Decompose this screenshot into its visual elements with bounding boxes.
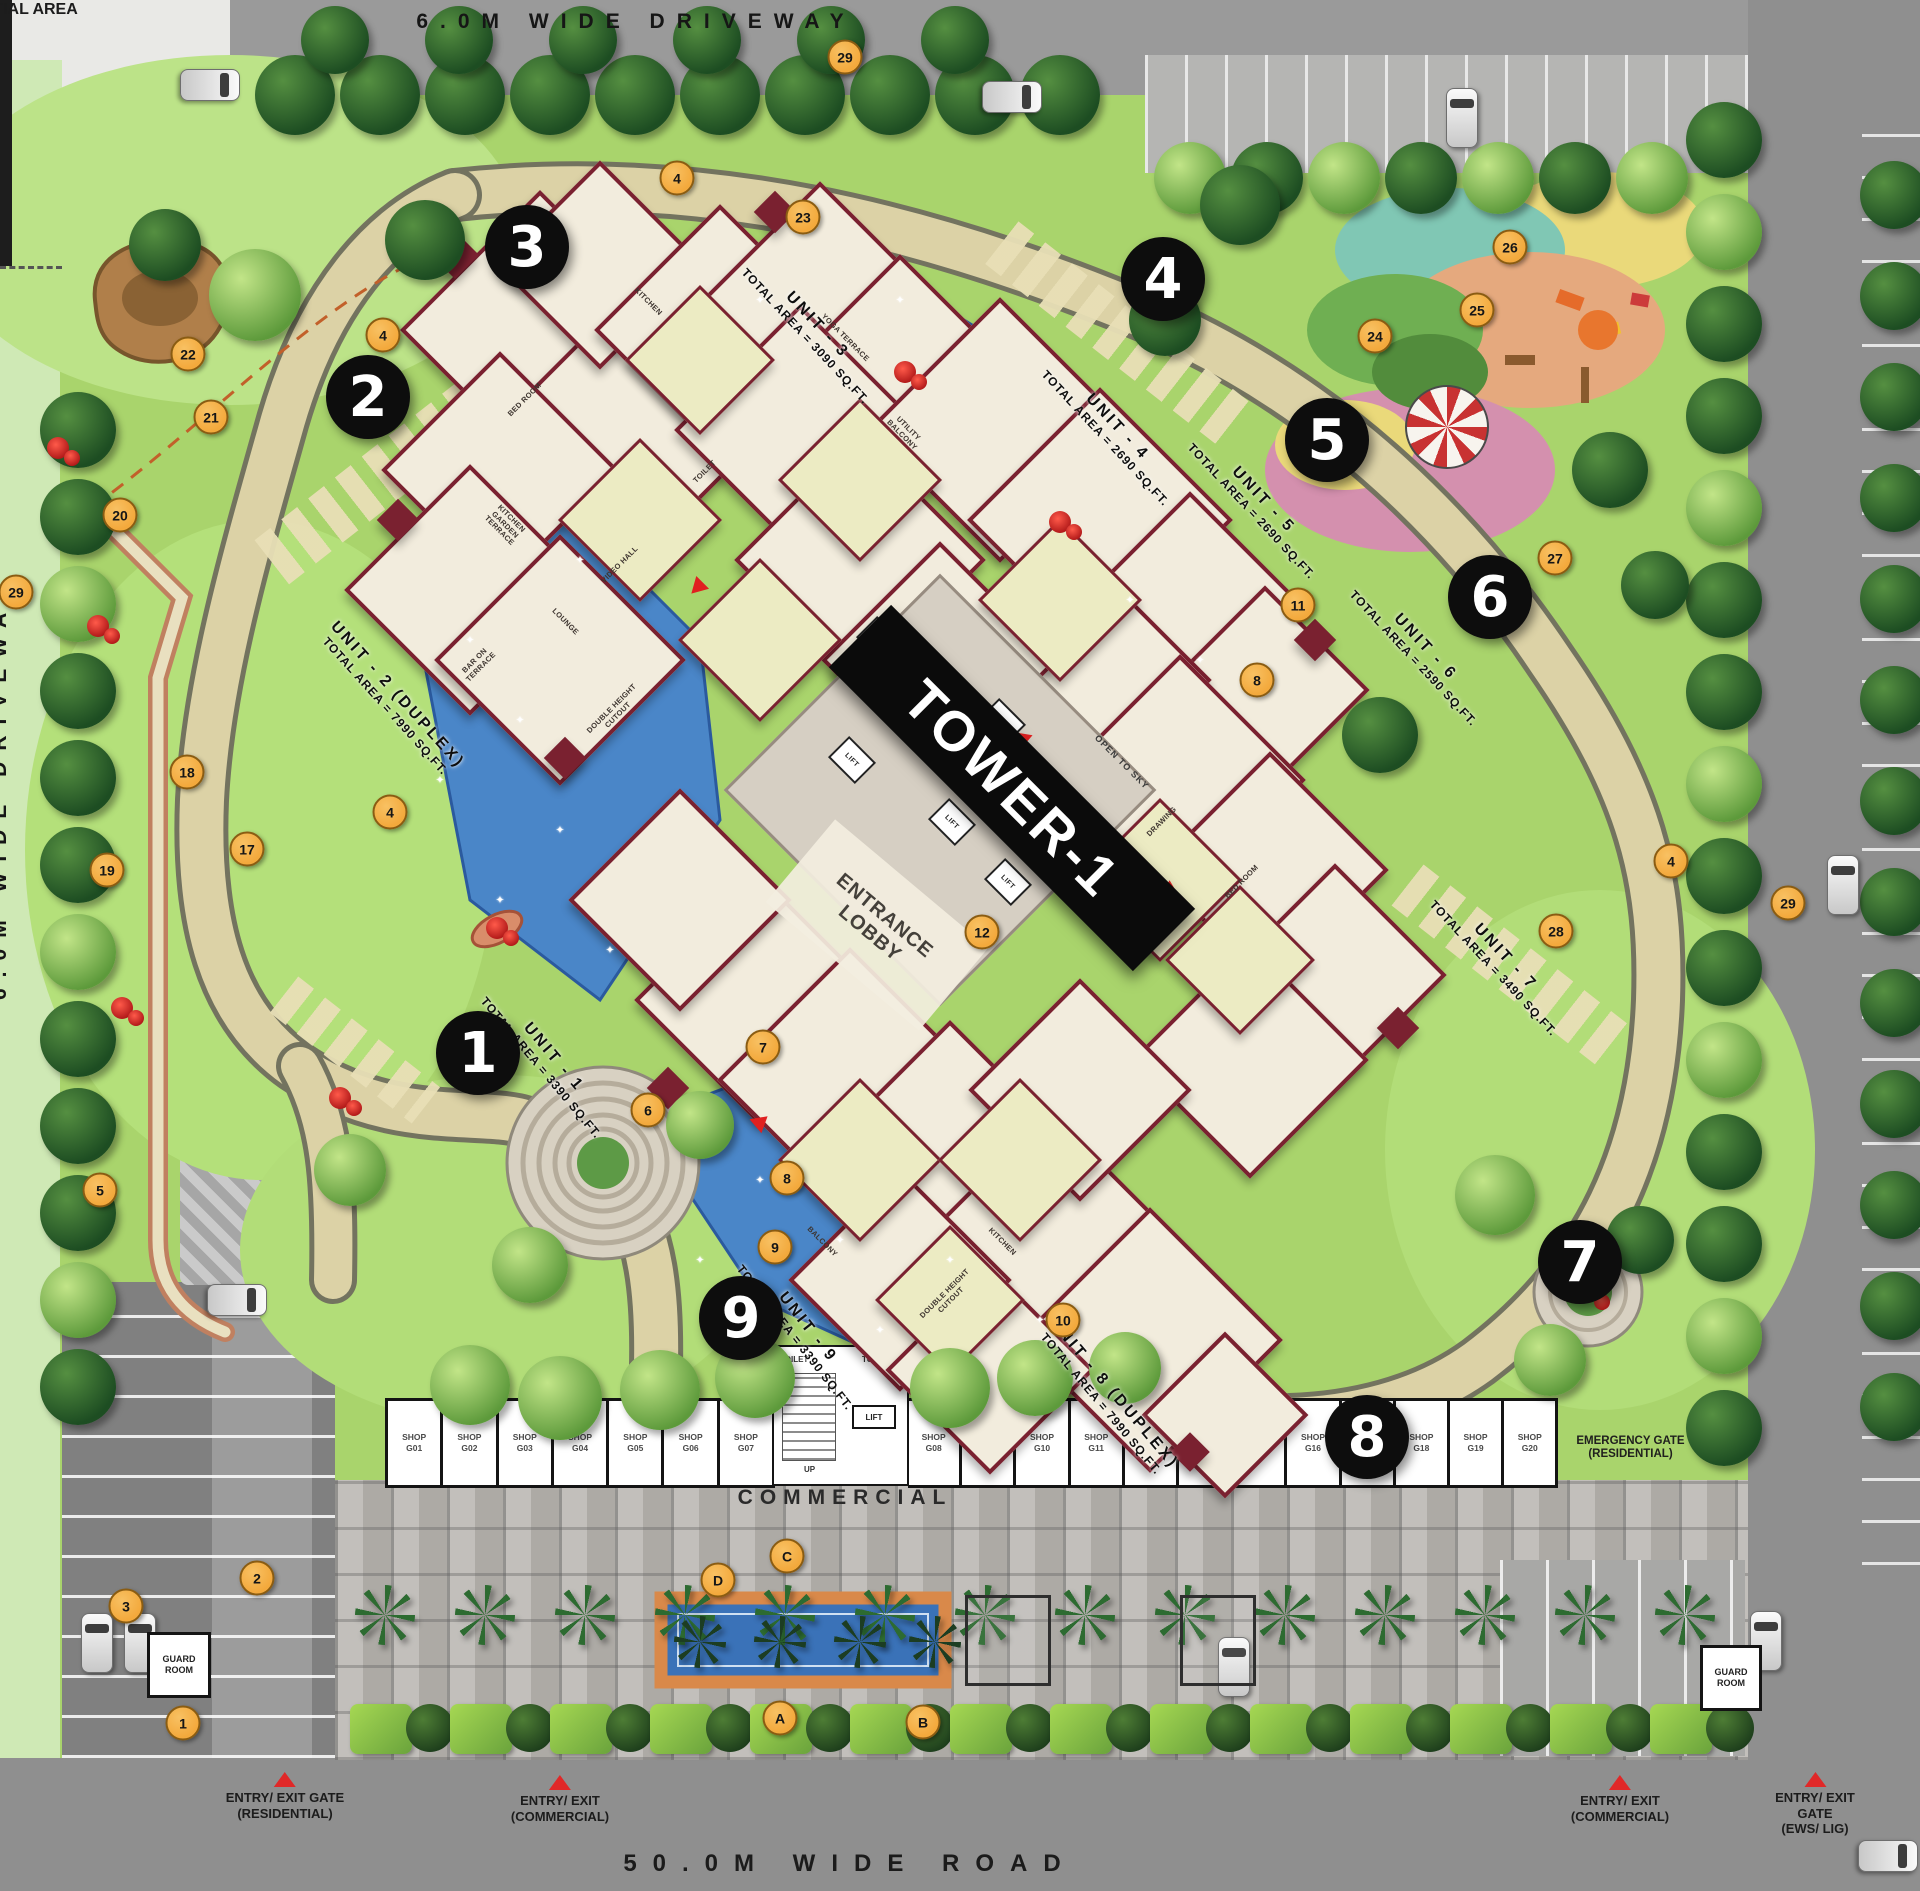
- site-plan: SHOPG01SHOPG02SHOPG03SHOPG04SHOPG05SHOPG…: [0, 0, 1920, 1891]
- tower-1-footprint: ENTRANCE LOBBYLIFTLIFTLIFTLIFTLIFTLIFTBE…: [0, 0, 1920, 1891]
- direction-arrow: [685, 576, 709, 600]
- building-block: [647, 1067, 689, 1109]
